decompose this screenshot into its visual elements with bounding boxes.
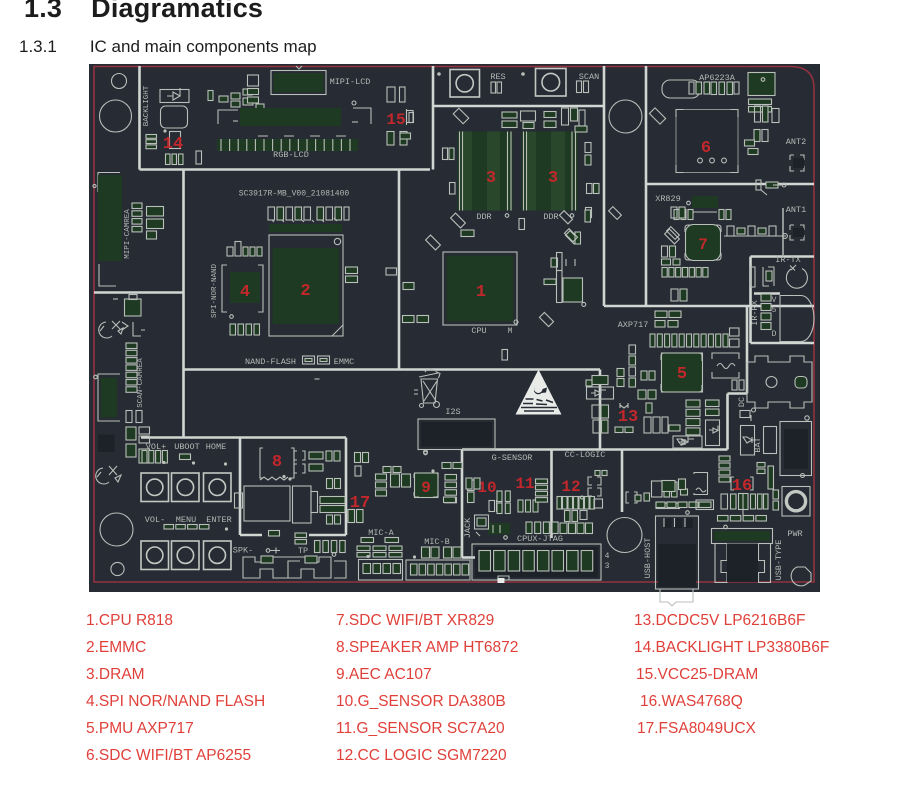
svg-text:RGB-LCD: RGB-LCD — [273, 150, 309, 160]
svg-text:NAND-FLASH: NAND-FLASH — [245, 357, 296, 367]
svg-text:ANT2: ANT2 — [786, 137, 806, 147]
svg-text:D: D — [772, 330, 777, 339]
svg-text:5: 5 — [772, 306, 777, 315]
svg-text:USB-HOST: USB-HOST — [643, 538, 653, 579]
svg-text:ENTER: ENTER — [206, 515, 232, 525]
svg-text:MIPI-LCD: MIPI-LCD — [330, 77, 371, 87]
svg-text:VOL-: VOL- — [145, 515, 165, 525]
svg-text:ANT1: ANT1 — [786, 205, 806, 215]
svg-text:7: 7 — [698, 236, 708, 254]
svg-text:CPUX-JTAG: CPUX-JTAG — [517, 534, 563, 544]
svg-text:HOME: HOME — [206, 442, 226, 452]
svg-text:3: 3 — [605, 562, 610, 571]
svg-text:8: 8 — [272, 453, 282, 472]
svg-text:V: V — [772, 296, 777, 305]
svg-text:JACK: JACK — [463, 517, 473, 538]
svg-text:13: 13 — [618, 408, 638, 427]
svg-text:DDR: DDR — [543, 212, 558, 222]
svg-text:DDR: DDR — [476, 212, 491, 222]
svg-text:AXP717: AXP717 — [618, 320, 649, 330]
svg-text:IR-RX: IR-RX — [750, 300, 760, 326]
svg-text:MIPI-CAMREA: MIPI-CAMREA — [124, 209, 132, 259]
svg-text:DC: DC — [737, 397, 747, 407]
svg-text:BAT: BAT — [753, 437, 763, 452]
svg-text:4: 4 — [605, 552, 610, 561]
svg-text:PWR: PWR — [787, 529, 802, 539]
svg-text:4: 4 — [240, 283, 250, 302]
svg-text:MIC-B: MIC-B — [424, 537, 450, 547]
svg-text:BACKLIGHT: BACKLIGHT — [143, 85, 151, 126]
svg-text:USB-TYPE: USB-TYPE — [774, 540, 784, 581]
svg-text:RES: RES — [490, 72, 505, 82]
svg-text:11: 11 — [515, 475, 534, 493]
svg-text:CPU: CPU — [471, 326, 486, 336]
svg-text:14: 14 — [163, 135, 183, 154]
svg-text:SC3917R-MB_V00_21081400: SC3917R-MB_V00_21081400 — [239, 190, 350, 199]
svg-text:SCAN-CAMREA: SCAN-CAMREA — [137, 358, 145, 408]
svg-text:2: 2 — [300, 282, 310, 301]
svg-text:UBOOT: UBOOT — [174, 442, 200, 452]
svg-text:SPK-: SPK- — [233, 546, 253, 556]
svg-text:12: 12 — [561, 478, 580, 496]
svg-text:I2S: I2S — [445, 407, 460, 417]
svg-text:XR829: XR829 — [655, 194, 681, 204]
svg-text:TP: TP — [298, 546, 308, 556]
svg-text:IR-TX: IR-TX — [775, 255, 801, 265]
svg-text:15: 15 — [386, 111, 405, 129]
svg-text:3: 3 — [486, 169, 496, 188]
svg-text:M: M — [508, 327, 513, 336]
svg-text:G-SENSOR: G-SENSOR — [492, 453, 533, 463]
svg-text:6: 6 — [701, 139, 711, 158]
svg-text:SPI-NOR-NAND: SPI-NOR-NAND — [211, 263, 219, 318]
svg-text:5: 5 — [677, 365, 687, 384]
svg-text:9: 9 — [421, 479, 431, 497]
svg-text:EMMC: EMMC — [334, 357, 354, 367]
svg-text:MIC-A: MIC-A — [368, 528, 394, 538]
svg-text:MENU: MENU — [176, 515, 196, 525]
svg-text:3: 3 — [548, 169, 558, 188]
svg-text:CC-LOGIC: CC-LOGIC — [565, 450, 606, 460]
svg-text:1: 1 — [476, 283, 486, 302]
